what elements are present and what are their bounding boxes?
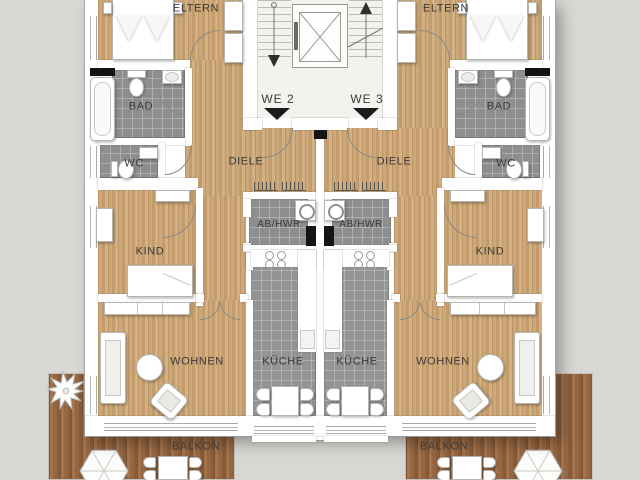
kitchen-sink [300, 330, 315, 349]
entrance-arrow-icon-we2 [264, 108, 290, 120]
room-label-kueche-right: KÜCHE [336, 357, 378, 368]
wardrobe [224, 33, 243, 63]
party-wall [316, 120, 324, 440]
stove-burner [277, 251, 286, 260]
balcony-chair [189, 457, 202, 468]
stove-burner [366, 251, 375, 260]
room-label-balkon-right: BALKON [420, 442, 468, 453]
window [84, 16, 97, 60]
wall [322, 192, 397, 199]
wardrobe [397, 1, 416, 31]
wall [475, 143, 482, 183]
kitchen-window-left [254, 426, 314, 434]
wall [185, 68, 192, 146]
radiator-icon [254, 182, 278, 191]
room-label-wohnen-right: WOHNEN [416, 357, 470, 368]
hall-floor-right-3 [394, 196, 440, 308]
room-label-bad-right: BAD [487, 102, 511, 113]
balcony-chair [143, 457, 156, 468]
stairwell-wall-right [383, 0, 397, 130]
pillow [470, 15, 496, 41]
unit-label-we2: WE 2 [261, 93, 294, 105]
room-label-diele-left: DIELE [229, 157, 264, 168]
room-label-balkon-left: BALKON [172, 442, 220, 453]
room-label-abhwr-right: AB/HWR [339, 220, 383, 230]
room-label-diele-right: DIELE [377, 157, 412, 168]
wall [196, 294, 204, 302]
kitchen-table [341, 386, 369, 416]
hall-floor-left-1 [185, 60, 245, 130]
radiator-icon [334, 182, 358, 191]
hall-floor-left-3 [200, 196, 246, 308]
wall [448, 68, 455, 146]
wardrobe [397, 33, 416, 63]
bathtub-inner [529, 82, 546, 136]
stairwell-wall-left [243, 0, 257, 130]
stove-burner [354, 251, 363, 260]
wall [387, 300, 394, 420]
round-rug [136, 354, 163, 381]
window [543, 376, 556, 414]
window [543, 16, 556, 60]
window [84, 146, 97, 178]
wall [158, 143, 165, 183]
shaft-block [324, 226, 334, 246]
sofa-cushion [519, 340, 535, 396]
balcony-chair [189, 470, 202, 480]
room-label-eltern-left: ELTERN [173, 4, 219, 15]
chair [300, 403, 314, 416]
room-label-wc-right: WC [496, 159, 516, 170]
wardrobe [96, 208, 113, 242]
window [543, 206, 556, 248]
parasol-icon-left [79, 446, 129, 480]
shaft-block [306, 226, 316, 246]
balcony-door-window-right [402, 423, 536, 431]
round-rug [477, 354, 504, 381]
wardrobe [224, 1, 243, 31]
wall [442, 178, 542, 190]
unit-label-we3: WE 3 [350, 93, 383, 105]
stairwell-wall-bottom [243, 118, 262, 130]
wall [98, 178, 198, 190]
radiator-icon [362, 182, 386, 191]
kitchen-window-right [326, 426, 386, 434]
entry-step [324, 436, 388, 442]
wall [436, 294, 444, 302]
sideboard [450, 302, 536, 315]
balcony-chair [437, 457, 450, 468]
room-label-kind-left: KIND [136, 247, 165, 258]
room-label-bad-left: BAD [129, 102, 153, 113]
chair [326, 403, 340, 416]
window [84, 376, 97, 414]
hall-floor-right-1 [395, 60, 455, 130]
radiator-icon [282, 182, 306, 191]
chair [370, 388, 384, 401]
balcony-door-window-left [104, 423, 238, 431]
floor-plan: WE 2 WE 3 [0, 0, 640, 480]
sofa-cushion [105, 340, 121, 396]
window [543, 146, 556, 178]
balcony-chair [437, 470, 450, 480]
wall-niche-bar [90, 68, 115, 76]
nightstand [103, 2, 112, 14]
wardrobe [527, 208, 544, 242]
nightstand [528, 2, 537, 14]
toilet [494, 70, 513, 78]
washing-machine-drum [328, 204, 344, 220]
balcony-chair [143, 470, 156, 480]
balcony-table-right [452, 456, 482, 480]
sink-basin [461, 72, 475, 82]
wall [389, 199, 397, 217]
stove-burner [366, 260, 375, 269]
stove-burner [265, 251, 274, 260]
wall [243, 192, 318, 199]
parasol-icon-right [513, 446, 563, 480]
room-label-wc-left: WC [124, 159, 144, 170]
tree-icon [47, 371, 87, 411]
chair [370, 403, 384, 416]
entrance-arrow-icon-we3 [353, 108, 379, 120]
sink-basin [165, 72, 179, 82]
stove-burner [265, 260, 274, 269]
entry-step [252, 436, 316, 442]
pillow [116, 15, 142, 41]
stairwell-wall-bottom [378, 118, 397, 130]
stairwell-wall-bottom [292, 118, 348, 130]
chair [256, 403, 270, 416]
room-label-wohnen-left: WOHNEN [170, 357, 224, 368]
toilet-bowl [496, 78, 511, 97]
chair [300, 388, 314, 401]
stove-burner [277, 260, 286, 269]
kitchen-sink [325, 330, 340, 349]
shelf [155, 190, 190, 202]
stove-burner [354, 260, 363, 269]
balcony-chair [483, 457, 496, 468]
room-label-kueche-left: KÜCHE [262, 357, 304, 368]
kitchen-table [271, 386, 299, 416]
wall [437, 188, 444, 306]
chair [326, 388, 340, 401]
wall [196, 188, 203, 306]
balcony-table-left [158, 456, 188, 480]
toilet-tank [111, 161, 118, 177]
bathtub-inner [94, 82, 111, 136]
shelf [450, 190, 485, 202]
toilet-tank [522, 161, 529, 177]
toilet [127, 70, 146, 78]
wall [246, 300, 253, 420]
room-label-kind-right: KIND [476, 247, 505, 258]
balcony-chair [483, 470, 496, 480]
chair [256, 388, 270, 401]
room-label-eltern-right: ELTERN [423, 4, 469, 15]
pillow [144, 15, 170, 41]
wall [243, 199, 251, 217]
wall-niche-bar [525, 68, 550, 76]
sideboard [104, 302, 190, 315]
pillow [498, 15, 524, 41]
toilet-bowl [129, 78, 144, 97]
washing-machine-drum [299, 204, 315, 220]
room-label-abhwr-left: AB/HWR [257, 220, 301, 230]
